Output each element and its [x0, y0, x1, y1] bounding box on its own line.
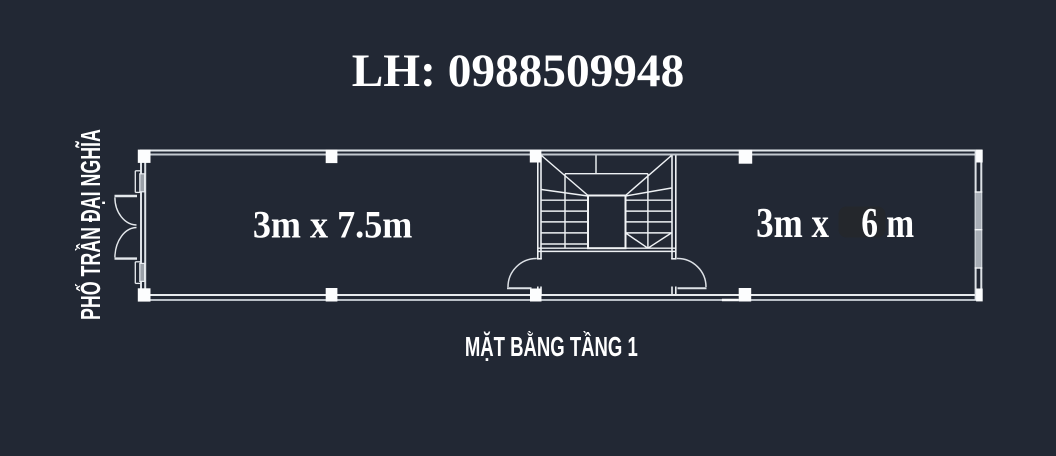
svg-text:3m x 7.5m: 3m x 7.5m: [253, 203, 413, 246]
svg-text:LH: 0988509948: LH: 0988509948: [352, 45, 685, 97]
svg-text:MẶT BẰNG TẦNG 1: MẶT BẰNG TẦNG 1: [465, 330, 638, 363]
svg-text:6 m: 6 m: [861, 201, 914, 247]
svg-text:3m x: 3m x: [756, 201, 829, 247]
svg-text:PHỐ TRẦN ĐẠI NGHĨA: PHỐ TRẦN ĐẠI NGHĨA: [74, 129, 106, 320]
